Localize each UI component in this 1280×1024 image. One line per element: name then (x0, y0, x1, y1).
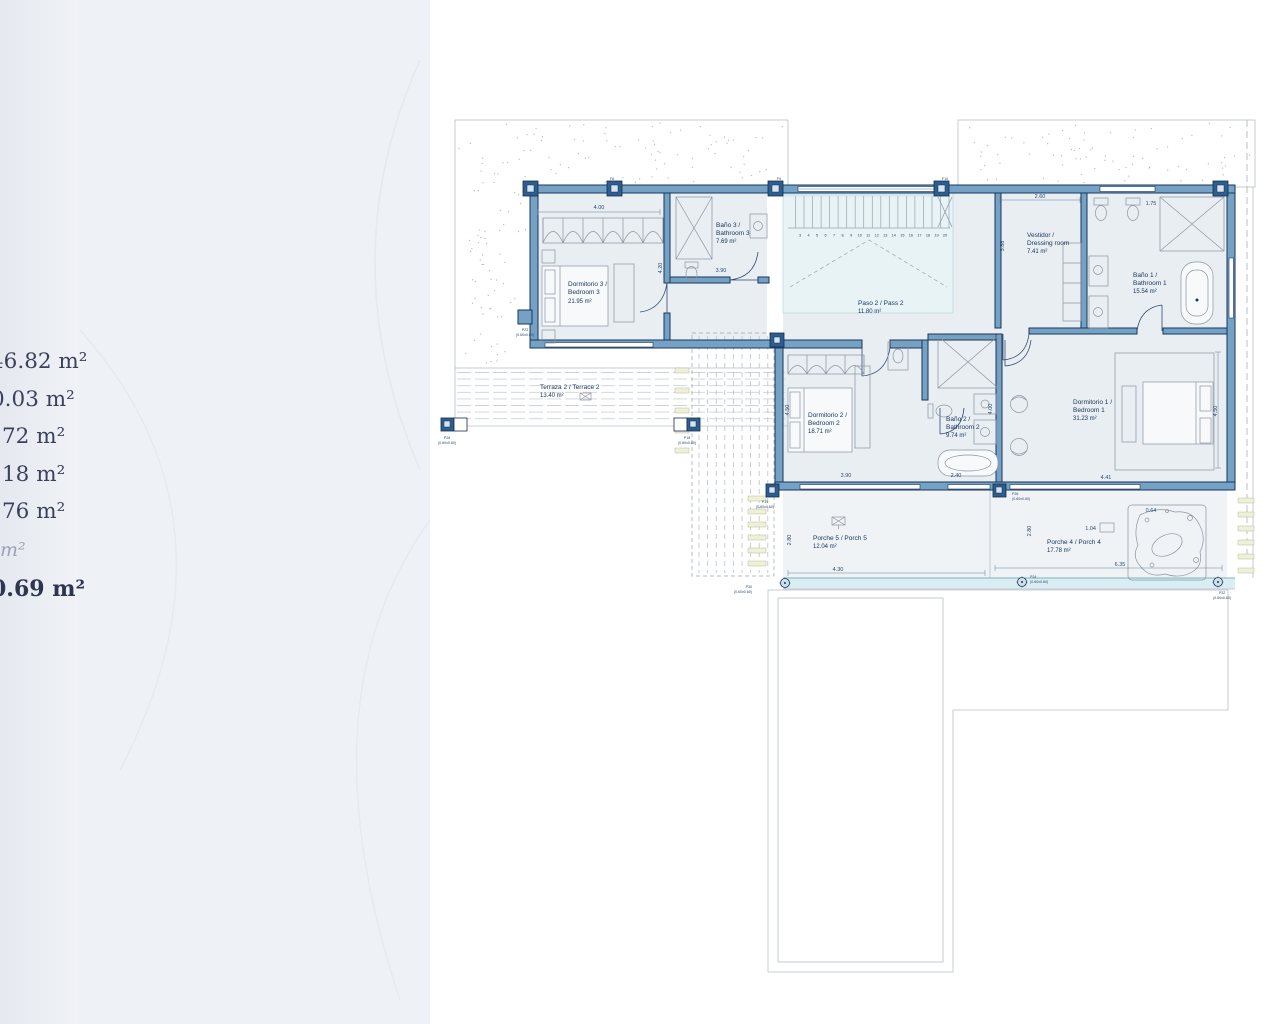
stair-step-number: 12 (875, 234, 879, 238)
dim-value: 4.50 (785, 405, 791, 416)
wall-bath3-left-b (664, 313, 670, 340)
pillar-mark: P24 (1030, 575, 1036, 579)
column-pair-icon (441, 418, 467, 431)
room-area: 7.41 m² (1027, 249, 1047, 255)
stair-step-number: 11 (866, 234, 870, 238)
room-area: 21.95 m² (568, 299, 592, 305)
floor-plan-page: 46.82 m² 0.03 m² 72 m² 18 m² 76 m² m² 0.… (0, 0, 1280, 1024)
measurement-value-total: 0.69 m² (0, 576, 85, 602)
window-bedroom3-terrace (545, 343, 653, 348)
room-name: Baño 2 / (946, 416, 970, 423)
beam-ticks (1238, 498, 1254, 573)
stair-step-number: 18 (926, 234, 930, 238)
dim-value: 2.80 (1027, 526, 1033, 537)
dim-value: 4.41 (1101, 475, 1112, 481)
dim-value: 4.00 (988, 404, 994, 415)
stair-step-number: 5 (816, 234, 818, 238)
terrace-2 (441, 368, 788, 426)
stair-step-number: 19 (934, 234, 938, 238)
room-name: Dormitorio 3 / (568, 281, 607, 288)
room-name: Porche 5 / Porch 5 (813, 535, 867, 542)
column-icon (770, 333, 784, 347)
pillar-mark: P32 (1219, 591, 1225, 595)
wall-bedroom2-left (775, 348, 783, 490)
room-area: 7.69 m² (716, 239, 736, 245)
pillar-size: (0.60x0.60) (1012, 497, 1030, 501)
pillar-mark: P22 (522, 328, 528, 332)
measurement-value-italic: m² (0, 539, 26, 561)
pillar-size: (0.60x0.60) (438, 441, 456, 445)
column-icon (993, 484, 1006, 497)
dim-value: 0.64 (1146, 508, 1157, 514)
room-area: 12.04 m² (813, 544, 837, 550)
wall-bath1-bottom-b (1163, 328, 1227, 334)
room-name: Bathroom 3 (716, 230, 750, 237)
pillar-mark: P28 (444, 436, 450, 440)
room-name: Baño 3 / (716, 222, 740, 229)
terrain-outline-right (958, 120, 1255, 187)
pillar-mark: P26 (1012, 492, 1018, 496)
pillar-size: (0.60x0.60) (1030, 580, 1048, 584)
room-area: 11.80 m² (858, 309, 881, 315)
pillar-size: (0.60x0.60) (678, 441, 696, 445)
stair-step-number: 9 (850, 234, 852, 238)
wall-bedroom2-top-a (775, 340, 862, 348)
wall-right (1227, 193, 1235, 482)
window-bath1 (1100, 187, 1155, 192)
bathtub-drain (1196, 299, 1199, 302)
measurement-value: 72 m² (2, 424, 65, 449)
measurement-value: 46.82 m² (0, 349, 87, 374)
stair-step-number: 10 (858, 234, 862, 238)
room-name: Paso 2 / Pass 2 (858, 300, 904, 307)
room-area: 13.40 m² (540, 393, 564, 399)
dim-value: 4.20 (658, 263, 664, 274)
bed-icon (542, 266, 608, 326)
pillar-mark: P30 (746, 585, 752, 589)
staircase: 34567891011121314151617181920 (783, 193, 953, 313)
window-mark: F8 (610, 177, 614, 181)
stair-step-number: 20 (943, 234, 947, 238)
dim-value: 2.60 (1035, 194, 1046, 200)
room-name: Bedroom 2 (808, 420, 840, 427)
room-area: 17.78 m² (1047, 548, 1071, 554)
column-icon (1213, 181, 1228, 196)
wall-bath1-bottom-a (1029, 328, 1137, 334)
floor-porch4 (990, 490, 1227, 578)
room-name: Dormitorio 1 / (1073, 399, 1112, 406)
room-area: 31.23 m² (1073, 416, 1097, 422)
column-icon (768, 181, 783, 196)
dim-value: 3.88 (1000, 241, 1006, 252)
dim-value: 1.75 (1146, 201, 1157, 207)
dim-value: 3.90 (716, 268, 727, 274)
window-bath1-east (1229, 258, 1234, 318)
stair-step-number: 16 (909, 234, 913, 238)
pillar-size: (0.60x0.60) (756, 505, 774, 509)
deck-boards (457, 373, 785, 419)
wall-vestidor-left (995, 193, 1001, 328)
wall-corridor (922, 340, 928, 400)
terrain-speckle (465, 190, 526, 364)
measurement-value: 0.03 m² (0, 387, 75, 412)
stair-step-number: 6 (825, 234, 827, 238)
floor-porch5 (783, 490, 990, 578)
room-name: Dormitorio 2 / (808, 412, 847, 419)
bed-icon (1143, 382, 1213, 444)
pillar-size: (0.60x0.60) (1213, 596, 1231, 600)
window-bath2 (948, 485, 990, 490)
wall-bath3-left-a (664, 193, 670, 283)
window-bedroom1-porch (1010, 485, 1140, 490)
window-mark: F9 (777, 177, 781, 181)
window-mark: F10 (942, 177, 948, 181)
wall-vestidor-right (1081, 193, 1087, 328)
dim-value: 1.04 (1085, 526, 1096, 532)
stair-step-number: 17 (917, 234, 921, 238)
column-icon (523, 181, 538, 196)
measurement-value: 18 m² (2, 462, 65, 487)
wall-bath3-bottom-b (758, 277, 769, 283)
stair-step-number: 14 (892, 234, 896, 238)
dim-value: 4.50 (1213, 406, 1219, 417)
terrain-speckle (458, 122, 783, 183)
window-bedroom2-porch (800, 485, 920, 490)
room-name: Terraza 2 / Terrace 2 (540, 384, 600, 391)
pillar-mark: P19 (762, 500, 768, 504)
stair-step-number: 4 (807, 234, 809, 238)
stair-step-number: 15 (900, 234, 904, 238)
room-name: Bedroom 3 (568, 289, 600, 296)
room-name: Dressing room (1027, 240, 1069, 247)
column-icon (766, 484, 779, 497)
column-icon (934, 181, 949, 196)
dim-value: 3.90 (841, 473, 852, 479)
dim-value: 6.35 (1115, 562, 1126, 568)
dim-value: 2.40 (951, 473, 962, 479)
room-name: Porche 4 / Porch 4 (1047, 539, 1101, 546)
dim-value: 4.00 (594, 205, 605, 211)
stair-step-number: 7 (833, 234, 835, 238)
wall-bath3-bottom-a (670, 277, 730, 283)
stair-void (783, 193, 953, 313)
room-name: Bathroom 1 (1133, 280, 1167, 287)
pillar-size: (0.60x0.60) (516, 333, 534, 337)
room-area: 9.74 m² (946, 433, 966, 439)
stair-step-number: 8 (842, 234, 844, 238)
room-area: 18.71 m² (808, 429, 832, 435)
room-area: 15.54 m² (1133, 289, 1157, 295)
ground-outline (768, 590, 1228, 972)
pool-outline (778, 598, 943, 962)
room-name: Vestidor / (1027, 232, 1054, 239)
stair-step-number: 13 (883, 234, 887, 238)
stair-glazing-band (783, 193, 950, 197)
column-icon (607, 181, 622, 196)
column-pair-icon (674, 418, 700, 431)
bathtub-icon (938, 450, 998, 476)
dim-value: 4.30 (833, 567, 844, 573)
pillar-size: (0.60x0.60) (734, 590, 752, 594)
measurement-value: 76 m² (2, 499, 65, 524)
room-name: Baño 1 / (1133, 272, 1157, 279)
room-name: Bathroom 2 (946, 424, 980, 431)
terrain-speckle (969, 123, 1250, 184)
room-name: Bedroom 1 (1073, 407, 1105, 414)
wall-pillar-notch (518, 310, 532, 324)
pillar-mark: P18 (684, 436, 690, 440)
stair-step-number: 3 (799, 234, 801, 238)
lower-level-outline (768, 590, 1228, 972)
dim-value: 2.80 (787, 535, 793, 546)
